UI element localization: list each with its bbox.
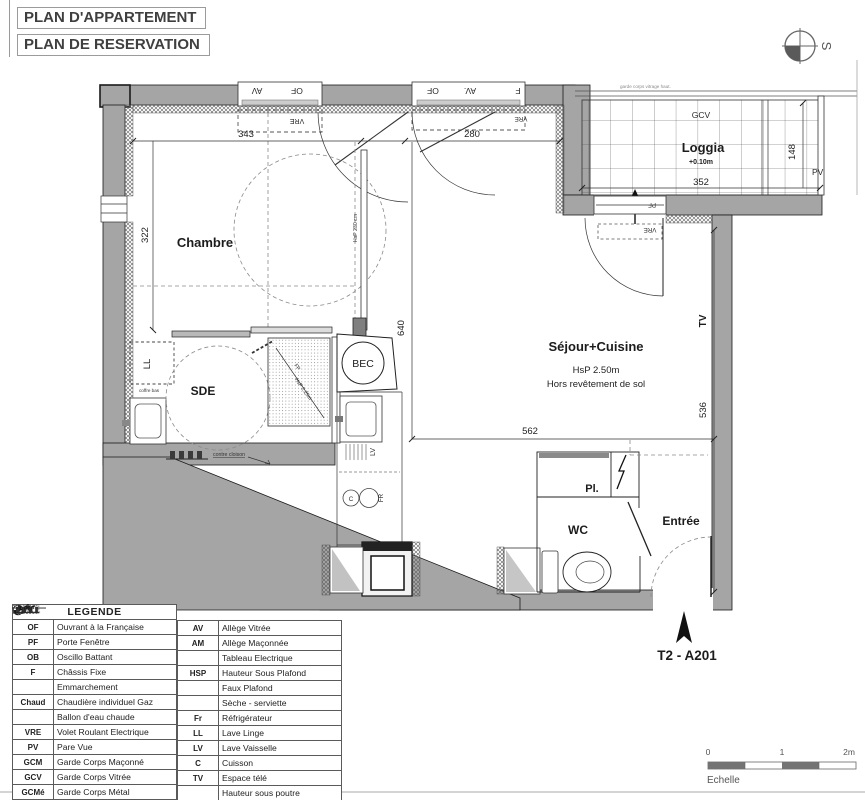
loggia-dim-width: 352 bbox=[693, 177, 709, 188]
contre-cloison-label: contre cloison bbox=[213, 452, 245, 458]
placard-label: Pl. bbox=[585, 483, 598, 495]
emmarchement-icon bbox=[13, 680, 54, 695]
scale-0: 0 bbox=[706, 747, 711, 757]
legend-table-right: AVAllège VitréeAMAllège MaçonnéeTableau … bbox=[177, 620, 342, 800]
seche-serviette-icon bbox=[178, 696, 219, 711]
legend-label: Réfrigérateur bbox=[219, 711, 342, 726]
legend-label: Hauteur sous poutre bbox=[219, 786, 342, 800]
legend-abbr: AM bbox=[178, 636, 219, 651]
lave-linge-label: LL bbox=[142, 359, 153, 370]
faux-plafond-icon bbox=[178, 681, 219, 696]
legend-label: Volet Roulant Electrique bbox=[54, 725, 177, 740]
ballon-eau-chaude-icon bbox=[13, 710, 54, 725]
window2-vre-label: VRE bbox=[515, 115, 528, 122]
legend-row: GCMGarde Corps Maçonné bbox=[13, 755, 177, 770]
legend-abbr: OF bbox=[13, 620, 54, 635]
loggia-vre-label: VRE bbox=[644, 226, 657, 233]
legend-label: Garde Corps Maçonné bbox=[54, 755, 177, 770]
refrigerateur-label: FR bbox=[378, 493, 385, 502]
legend-abbr: OB bbox=[13, 650, 54, 665]
legend-abbr: PV bbox=[13, 740, 54, 755]
chambre-label: Chambre bbox=[177, 235, 233, 250]
legend-label: Chaudière individuel Gaz bbox=[54, 695, 177, 710]
legend-label: Châssis Fixe bbox=[54, 665, 177, 680]
legend-abbr: F bbox=[13, 665, 54, 680]
dim-343: 343 bbox=[238, 129, 254, 140]
legend-label: Hauteur Sous Plafond bbox=[219, 666, 342, 681]
window2-of-label: OF bbox=[427, 86, 439, 96]
sde-label: SDE bbox=[191, 384, 216, 398]
legend-row: HSPHauteur sous poutre bbox=[178, 786, 342, 800]
legend-row: GCVGarde Corps Vitrée bbox=[13, 770, 177, 785]
scale-1: 1 bbox=[780, 747, 785, 757]
legend-row: HSPHauteur Sous Plafond bbox=[178, 666, 342, 681]
legend-abbr: GCMé bbox=[13, 785, 54, 800]
dim-562: 562 bbox=[522, 426, 538, 437]
legend-row: LVLave Vaisselle bbox=[178, 741, 342, 756]
legend-abbr: Chaud bbox=[13, 695, 54, 710]
loggia-dim-height: 148 bbox=[787, 144, 798, 160]
legend-label: Porte Fenêtre bbox=[54, 635, 177, 650]
loggia-level: +0.10m bbox=[689, 159, 713, 166]
legend-abbr: LL bbox=[178, 726, 219, 741]
loggia-guardrail-note: garde corps vitrage haut. bbox=[620, 84, 671, 89]
scale-2m: 2m bbox=[843, 747, 855, 757]
floor-plan-page: garde corps vitrage haut. GCV Loggia +0.… bbox=[0, 0, 865, 800]
bec-label: BEC bbox=[352, 358, 374, 370]
tableau-electrique-icon bbox=[178, 651, 219, 666]
legend-row: ChaudChaudière individuel Gaz bbox=[13, 695, 177, 710]
legend-table-left: LEGENDE OFOuvrant à la FrançaisePFPorte … bbox=[12, 604, 177, 800]
legend-row: CCuisson bbox=[178, 756, 342, 771]
legend-label: Sèche - serviette bbox=[219, 696, 342, 711]
window2-av-label: AV. bbox=[464, 86, 476, 96]
legend-label: Faux Plafond bbox=[219, 681, 342, 696]
legend-label: Allège Vitrée bbox=[219, 621, 342, 636]
dim-536: 536 bbox=[698, 402, 709, 418]
legend-label: Cuisson bbox=[219, 756, 342, 771]
page-subtitle: PLAN DE RESERVATION bbox=[17, 34, 210, 56]
legend-row: AVAllège Vitrée bbox=[178, 621, 342, 636]
legend-label: Ballon d'eau chaude bbox=[54, 710, 177, 725]
legend-row: TVEspace télé bbox=[178, 771, 342, 786]
legend-row: VREVolet Roulant Electrique bbox=[13, 725, 177, 740]
sejour-label: Séjour+Cuisine bbox=[549, 339, 644, 354]
loggia-gcv-label: GCV bbox=[692, 110, 711, 120]
legend-label: Garde Corps Vitrée bbox=[54, 770, 177, 785]
cuisson-label: C bbox=[349, 496, 354, 503]
legend-row: OFOuvrant à la Française bbox=[13, 620, 177, 635]
legend-row: Faux Plafond bbox=[178, 681, 342, 696]
pare-vue-label: PV bbox=[812, 167, 824, 177]
legend-abbr: AV bbox=[178, 621, 219, 636]
legend-row: AMAllège Maçonnée bbox=[178, 636, 342, 651]
legend-abbr: PF bbox=[13, 635, 54, 650]
entree-label: Entrée bbox=[662, 514, 700, 528]
legend-row: FChâssis Fixe bbox=[13, 665, 177, 680]
legend-abbr: VRE bbox=[13, 725, 54, 740]
legend-label: Tableau Electrique bbox=[219, 651, 342, 666]
left-wall-window bbox=[101, 196, 127, 222]
legend-abbr: LV bbox=[178, 741, 219, 756]
legend-row: PVPare Vue bbox=[13, 740, 177, 755]
legend-label: Garde Corps Métal bbox=[54, 785, 177, 800]
legend-label: Pare Vue bbox=[54, 740, 177, 755]
pare-vue-screen bbox=[818, 96, 824, 195]
hauteur-sous-poutre-icon: HSP bbox=[178, 786, 219, 800]
legend-label: Lave Vaisselle bbox=[219, 741, 342, 756]
sliding-door bbox=[172, 331, 250, 337]
legend-abbr: Fr bbox=[178, 711, 219, 726]
page-edge-left bbox=[9, 0, 10, 57]
legend-abbr: GCV bbox=[13, 770, 54, 785]
legend-row: Ballon d'eau chaude bbox=[13, 710, 177, 725]
legend-abbr: C bbox=[178, 756, 219, 771]
legend-row: Emmarchement bbox=[13, 680, 177, 695]
legend-abbr: HSP bbox=[178, 666, 219, 681]
compass-south-label: S bbox=[819, 42, 834, 51]
coffre-bas-label: coffre bas bbox=[139, 388, 160, 393]
tv-label: TV bbox=[698, 314, 709, 327]
scale-label: Echelle bbox=[707, 775, 740, 786]
legend-row: Sèche - serviette bbox=[178, 696, 342, 711]
legend-label: Ouvrant à la Française bbox=[54, 620, 177, 635]
toilet-tank bbox=[542, 551, 558, 593]
dim-322: 322 bbox=[140, 227, 151, 243]
lave-vaisselle-label: LV bbox=[370, 448, 377, 456]
legend-abbr: GCM bbox=[13, 755, 54, 770]
legend-label: Allège Maçonnée bbox=[219, 636, 342, 651]
dim-640: 640 bbox=[396, 320, 407, 336]
sejour-note: Hors revêtement de sol bbox=[547, 379, 645, 390]
window1-of-label: OF bbox=[291, 86, 303, 96]
page-title: PLAN D'APPARTEMENT bbox=[17, 7, 206, 29]
legend-row: PFPorte Fenêtre bbox=[13, 635, 177, 650]
legend-row: FrRéfrigérateur bbox=[178, 711, 342, 726]
legend-label: Lave Linge bbox=[219, 726, 342, 741]
legend-label: Oscillo Battant bbox=[54, 650, 177, 665]
legend-row: GCMéGarde Corps Métal bbox=[13, 785, 177, 800]
apartment-id-label: T2 - A201 bbox=[657, 648, 717, 663]
entry-door-opening bbox=[653, 588, 713, 612]
legend-row: LLLave Linge bbox=[178, 726, 342, 741]
legend-row: OBOscillo Battant bbox=[13, 650, 177, 665]
window2-f-label: F bbox=[515, 86, 520, 96]
sejour-hsp: HsP 2.50m bbox=[573, 365, 620, 376]
legend-label: Emmarchement bbox=[54, 680, 177, 695]
loggia-label: Loggia bbox=[682, 140, 725, 155]
window1-av-label: AV bbox=[251, 86, 262, 96]
legend-label: Espace télé bbox=[219, 771, 342, 786]
svg-text:HSP: HSP bbox=[24, 607, 35, 613]
loggia-pf-label: PF bbox=[648, 201, 656, 208]
legend-row: Tableau Electrique bbox=[178, 651, 342, 666]
chambre-hsp-note: HsP 230 cm bbox=[353, 214, 359, 242]
wc-label: WC bbox=[568, 523, 588, 537]
dim-280: 280 bbox=[464, 129, 480, 140]
legend-abbr: TV bbox=[178, 771, 219, 786]
legend: LEGENDE OFOuvrant à la FrançaisePFPorte … bbox=[12, 604, 342, 800]
window1-vre-label: VRE bbox=[289, 117, 304, 124]
